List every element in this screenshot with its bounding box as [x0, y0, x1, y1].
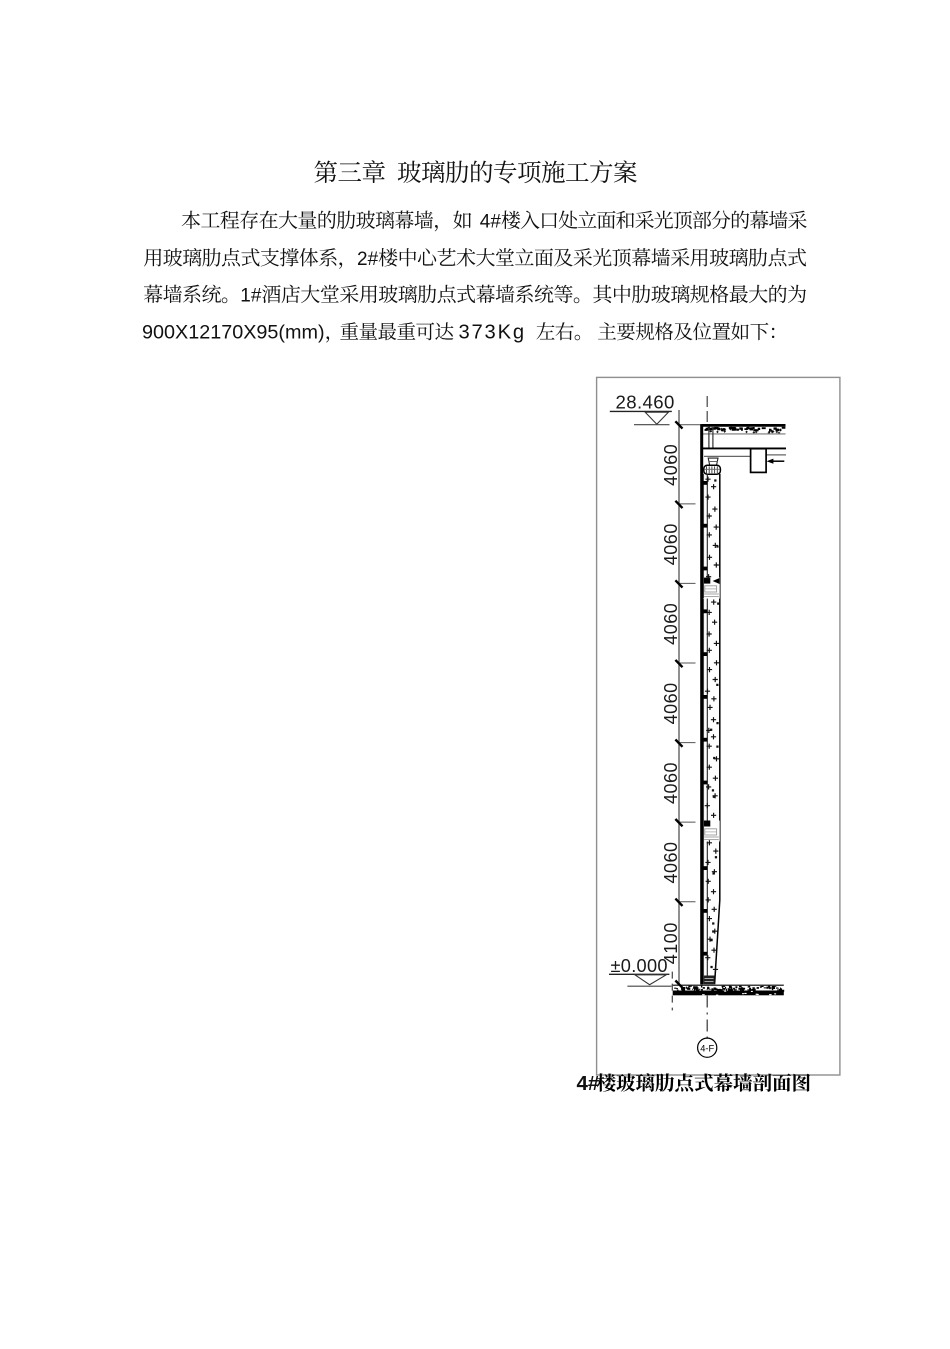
svg-text:2#: 2#	[357, 249, 379, 270]
svg-text:4-F: 4-F	[700, 1044, 714, 1054]
svg-text:4#: 4#	[480, 211, 502, 232]
svg-text:4060: 4060	[661, 523, 681, 565]
svg-text:4060: 4060	[661, 682, 681, 724]
svg-text:4#: 4#	[577, 1072, 600, 1095]
svg-text:28.460: 28.460	[616, 392, 675, 413]
svg-text:373Kg: 373Kg	[459, 322, 526, 344]
svg-text:4060: 4060	[661, 762, 681, 804]
svg-text:4060: 4060	[661, 603, 681, 645]
svg-text:4060: 4060	[661, 444, 681, 486]
svg-text:1#: 1#	[240, 286, 262, 307]
svg-text:±0.000: ±0.000	[611, 956, 668, 976]
svg-text:4060: 4060	[661, 841, 681, 883]
svg-text:900X12170X95(mm): 900X12170X95(mm)	[142, 322, 325, 344]
